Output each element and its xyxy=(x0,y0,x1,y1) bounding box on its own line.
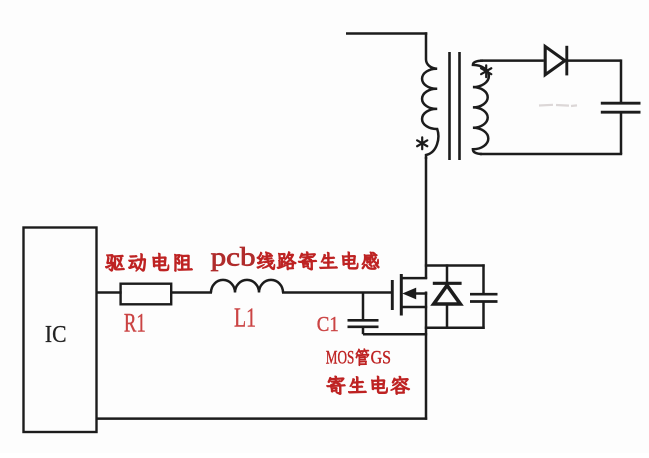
svg-text:R1: R1 xyxy=(124,308,146,337)
svg-text:MOS: MOS xyxy=(326,348,355,369)
svg-text:L1: L1 xyxy=(234,302,256,332)
svg-text:pcb: pcb xyxy=(211,242,256,271)
svg-text:IC: IC xyxy=(45,321,67,348)
svg-text:C1: C1 xyxy=(317,312,339,336)
svg-text:GS: GS xyxy=(371,348,391,369)
